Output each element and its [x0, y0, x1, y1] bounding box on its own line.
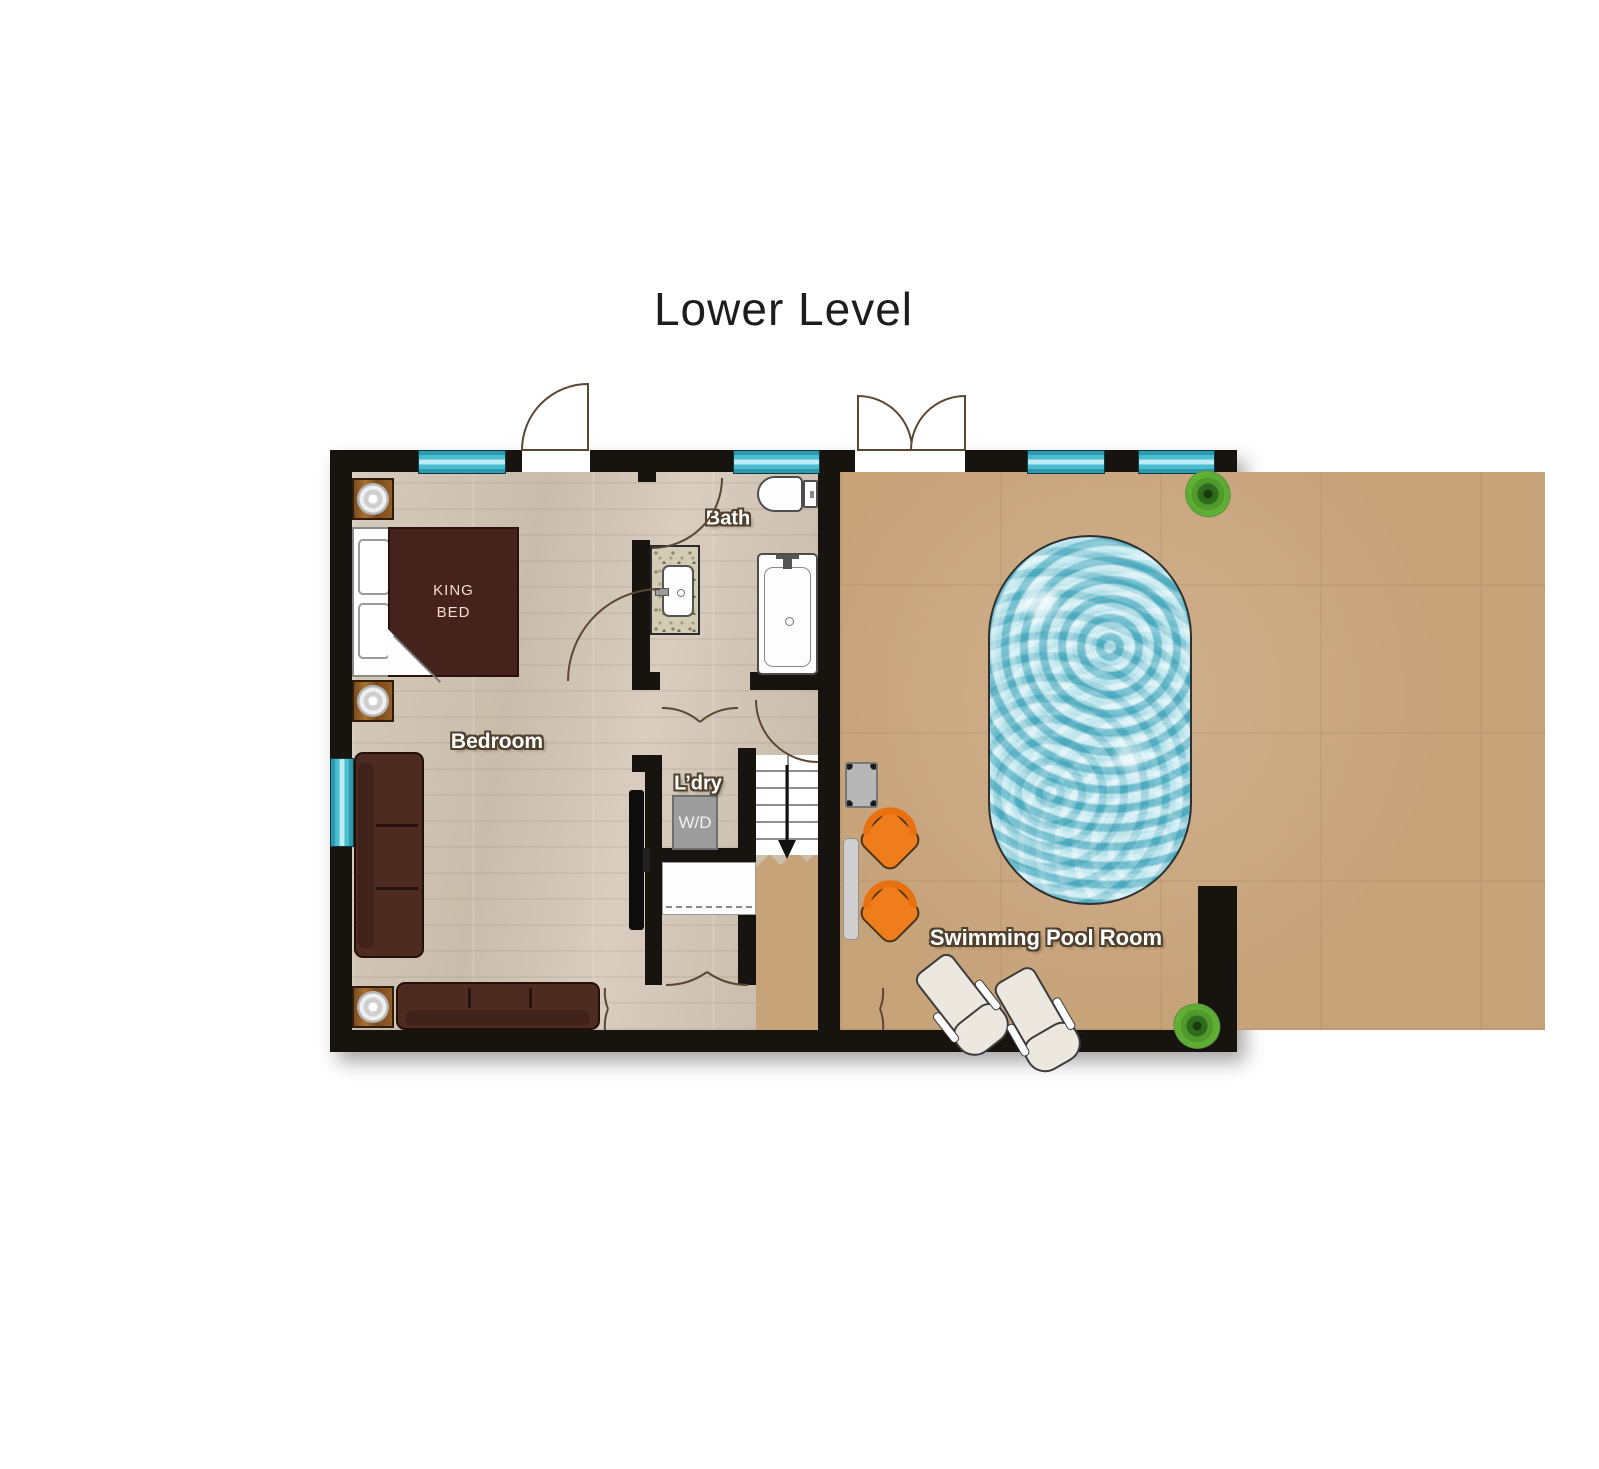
page-title: Lower Level — [330, 282, 1237, 336]
side-table — [845, 762, 878, 808]
staircase — [756, 755, 818, 855]
swimming-pool — [988, 535, 1192, 905]
sofa-back — [406, 1010, 590, 1026]
toilet — [757, 476, 818, 512]
window-bedroom-top — [418, 450, 506, 474]
stair-landing-floor — [756, 845, 818, 1030]
window-bedroom-left — [330, 758, 354, 847]
pillow — [358, 539, 390, 595]
closet — [662, 862, 756, 915]
sofa-back — [358, 762, 374, 948]
wall-laundry-closet-divider — [645, 848, 756, 862]
king-bed: KING BED — [352, 527, 517, 677]
nightstand — [352, 680, 394, 722]
bath-label: Bath — [706, 508, 750, 531]
pool-room-label: Swimming Pool Room — [930, 925, 1162, 951]
lamp-icon — [357, 685, 389, 717]
toilet-button — [810, 491, 814, 498]
door-gap-pool-entry — [855, 450, 965, 472]
bedroom-label: Bedroom — [451, 730, 543, 754]
door-arc-pool-entry-left — [858, 396, 912, 450]
floor-plan: KING BED W/D — [330, 450, 1237, 1052]
king-bed-label-line1: KING — [433, 580, 474, 602]
pillow — [358, 603, 390, 659]
sofa-cushions — [410, 988, 586, 1008]
wall-bath-left — [632, 540, 650, 690]
wall-bath-top-stub — [638, 450, 656, 482]
pool-gate-panel — [843, 838, 859, 940]
door-arc-pool-entry-right — [911, 396, 965, 450]
bathtub-faucet — [783, 557, 792, 569]
bathroom-vanity — [650, 545, 700, 635]
window-pool-top-1 — [1027, 450, 1105, 474]
laundry-label: L’dry — [674, 773, 722, 796]
lamp-icon — [357, 483, 389, 515]
sofa-loveseat — [354, 752, 424, 958]
washer-dryer: W/D — [672, 795, 718, 850]
sink — [662, 565, 694, 617]
bed-duvet: KING BED — [388, 527, 519, 677]
sink-faucet — [655, 588, 669, 596]
nightstand — [352, 986, 394, 1028]
nightstand — [352, 478, 394, 520]
sink-drain — [677, 589, 685, 597]
king-bed-label-line2: BED — [433, 602, 474, 624]
tv-mount — [643, 848, 650, 872]
toilet-bowl — [757, 476, 803, 512]
bathtub-drain — [785, 617, 794, 626]
window-bath-top — [733, 450, 820, 474]
wall-pool-divider — [818, 450, 840, 988]
door-arc-bedroom-entry — [522, 384, 588, 450]
wall-bath-bottom-left-stub — [632, 672, 660, 690]
sofa-cushions — [376, 764, 418, 946]
bathtub — [757, 553, 818, 675]
door-gap-bedroom-entry — [522, 450, 590, 472]
lamp-icon — [357, 991, 389, 1023]
tv — [629, 790, 644, 930]
sofa-long — [396, 982, 600, 1030]
